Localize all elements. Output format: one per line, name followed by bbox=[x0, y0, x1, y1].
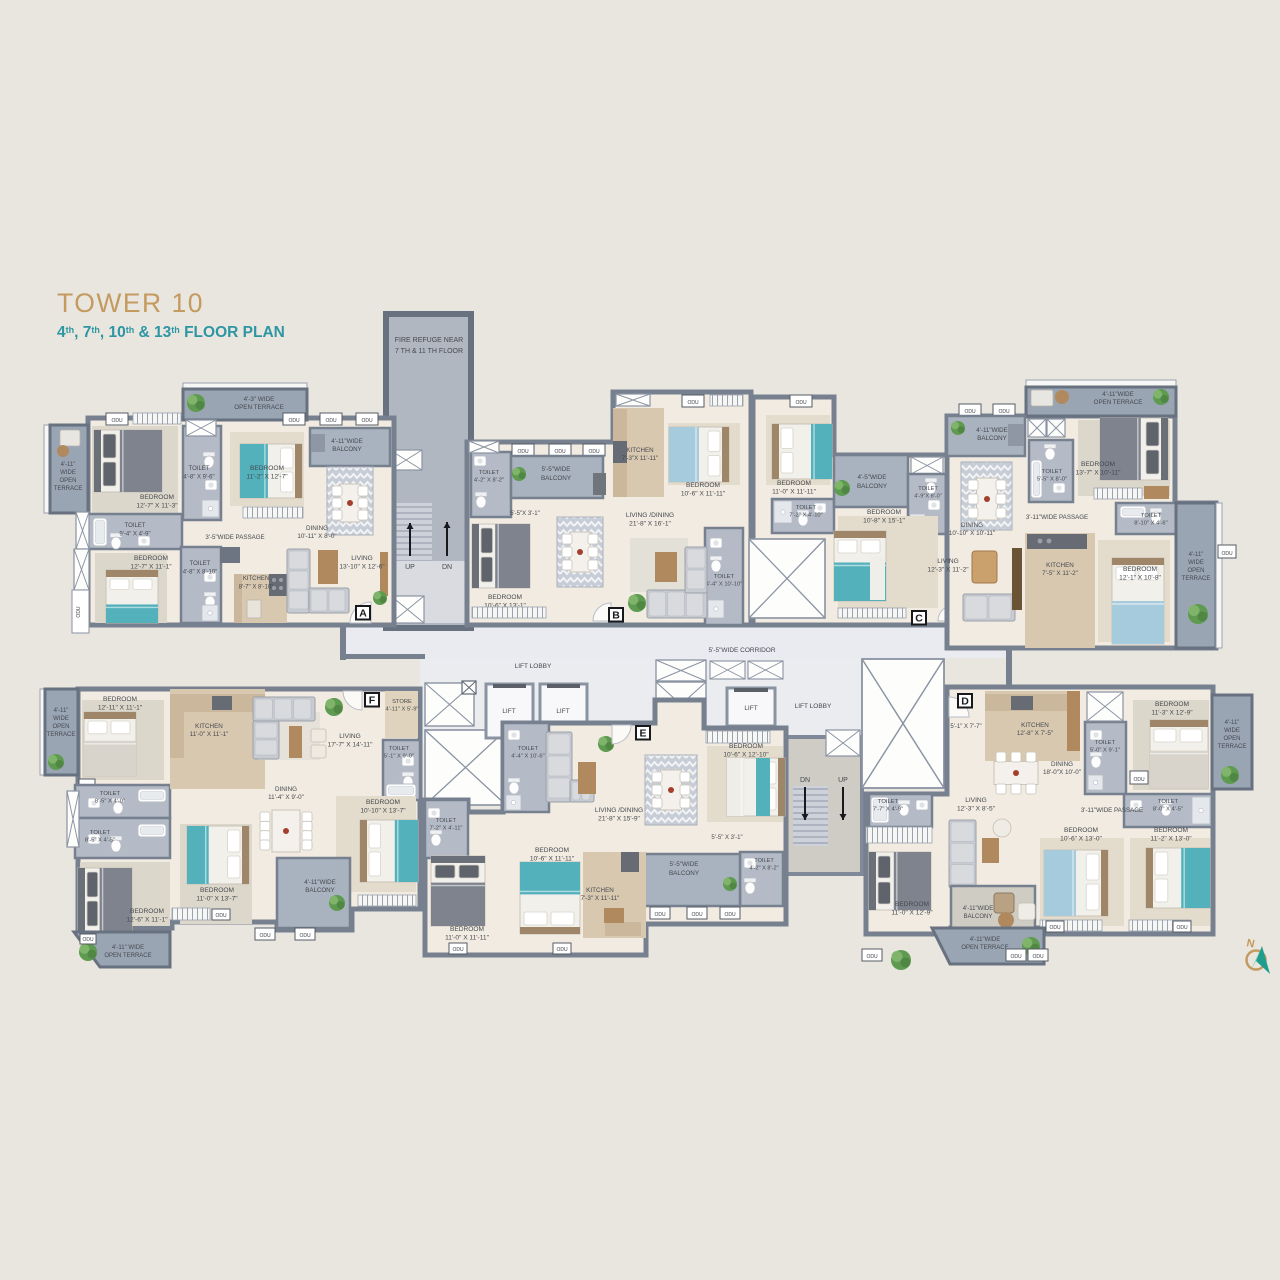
svg-text:10'-6" X 11'-11": 10'-6" X 11'-11" bbox=[530, 856, 575, 863]
svg-text:4'-11"WIDE: 4'-11"WIDE bbox=[1102, 391, 1133, 398]
svg-text:TOILET: TOILET bbox=[714, 574, 735, 580]
svg-text:ODU: ODU bbox=[866, 954, 878, 960]
svg-text:C: C bbox=[915, 613, 923, 625]
svg-text:DN: DN bbox=[442, 564, 452, 571]
svg-text:4'-11" X 5'-9": 4'-11" X 5'-9" bbox=[386, 707, 419, 713]
svg-text:7'-2" X 4'-11": 7'-2" X 4'-11" bbox=[430, 826, 463, 832]
svg-text:BEDROOM: BEDROOM bbox=[103, 696, 137, 703]
svg-text:ODU: ODU bbox=[964, 409, 976, 415]
svg-text:ODU: ODU bbox=[76, 606, 82, 618]
svg-text:ODU: ODU bbox=[654, 912, 666, 918]
svg-text:ODU: ODU bbox=[724, 912, 736, 918]
svg-text:D: D bbox=[961, 696, 969, 708]
svg-text:BEDROOM: BEDROOM bbox=[1123, 566, 1157, 573]
svg-text:ODU: ODU bbox=[299, 933, 311, 939]
svg-text:12'-3" X 8'-5": 12'-3" X 8'-5" bbox=[957, 806, 996, 813]
svg-text:KITCHEN: KITCHEN bbox=[626, 447, 653, 454]
svg-text:3'-5"WIDE PASSAGE: 3'-5"WIDE PASSAGE bbox=[205, 534, 264, 541]
svg-text:BEDROOM: BEDROOM bbox=[1154, 827, 1188, 834]
svg-text:4'-11" WIDE: 4'-11" WIDE bbox=[112, 945, 144, 951]
svg-text:11'-0" X 11'-1": 11'-0" X 11'-1" bbox=[190, 731, 229, 738]
svg-text:WIDE: WIDE bbox=[53, 716, 69, 722]
svg-text:7'-2" X 4'-10": 7'-2" X 4'-10" bbox=[789, 513, 822, 519]
svg-text:10'-10" X 10'-11": 10'-10" X 10'-11" bbox=[949, 530, 995, 537]
svg-text:TOILET: TOILET bbox=[796, 505, 817, 511]
svg-text:TERRACE: TERRACE bbox=[54, 486, 83, 492]
svg-text:4'-4" X 10'-6": 4'-4" X 10'-6" bbox=[511, 754, 544, 760]
svg-text:4'-11": 4'-11" bbox=[54, 708, 69, 714]
svg-text:4'-4" X 10'-10": 4'-4" X 10'-10" bbox=[706, 582, 743, 588]
svg-text:8'-5" X 4'-5": 8'-5" X 4'-5" bbox=[85, 838, 115, 844]
svg-text:TOILET: TOILET bbox=[479, 470, 500, 476]
svg-text:E: E bbox=[639, 728, 646, 740]
svg-text:4'-2" X 8'-2": 4'-2" X 8'-2" bbox=[749, 866, 778, 872]
svg-text:TOILET: TOILET bbox=[754, 858, 774, 864]
svg-text:BALCONY: BALCONY bbox=[541, 475, 572, 482]
svg-text:OPEN: OPEN bbox=[1187, 568, 1204, 574]
svg-text:10'-11" X 8'-0": 10'-11" X 8'-0" bbox=[297, 533, 336, 540]
svg-text:7'-7" X 4'-9": 7'-7" X 4'-9" bbox=[873, 807, 903, 813]
svg-text:ODU: ODU bbox=[1032, 954, 1044, 960]
svg-text:10'-6" X 11'-11": 10'-6" X 11'-11" bbox=[681, 491, 726, 498]
svg-text:TOILET: TOILET bbox=[100, 791, 121, 797]
svg-text:LIVING: LIVING bbox=[937, 558, 959, 565]
svg-text:OPEN: OPEN bbox=[59, 478, 76, 484]
svg-text:7'-3" X 11'-11": 7'-3" X 11'-11" bbox=[581, 895, 620, 902]
svg-text:17'-7" X 14'-11": 17'-7" X 14'-11" bbox=[328, 742, 373, 749]
svg-text:4'-3" WIDE: 4'-3" WIDE bbox=[244, 396, 275, 403]
svg-text:ODU: ODU bbox=[1133, 777, 1145, 783]
svg-text:7'-5" X 11'-2": 7'-5" X 11'-2" bbox=[1042, 570, 1078, 577]
svg-text:4th, 7th, 10th & 13th FLOOR PL: 4th, 7th, 10th & 13th FLOOR PLAN bbox=[57, 324, 285, 341]
svg-text:ODU: ODU bbox=[554, 449, 566, 455]
svg-text:7'-3"X 11'-11": 7'-3"X 11'-11" bbox=[622, 455, 658, 462]
svg-text:8'-10" X 4'-6": 8'-10" X 4'-6" bbox=[1134, 521, 1167, 527]
svg-text:BALCONY: BALCONY bbox=[332, 446, 362, 453]
svg-text:WIDE: WIDE bbox=[1188, 560, 1204, 566]
svg-text:4'-11": 4'-11" bbox=[61, 462, 76, 468]
svg-text:ODU: ODU bbox=[588, 449, 600, 455]
svg-text:4'-11"WIDE: 4'-11"WIDE bbox=[304, 879, 335, 886]
svg-text:KITCHEN: KITCHEN bbox=[1021, 722, 1049, 729]
svg-text:TERRACE: TERRACE bbox=[1182, 576, 1211, 582]
svg-text:4'-8" X 8'-10": 4'-8" X 8'-10" bbox=[183, 570, 218, 576]
svg-text:TOILET: TOILET bbox=[436, 818, 457, 824]
svg-text:4'-8" X 9'-6": 4'-8" X 9'-6" bbox=[183, 475, 214, 481]
svg-text:BEDROOM: BEDROOM bbox=[1155, 701, 1189, 708]
svg-text:FIRE REFUGE NEAR: FIRE REFUGE NEAR bbox=[395, 337, 463, 344]
svg-text:13'-7" X 10'-11": 13'-7" X 10'-11" bbox=[1076, 470, 1121, 477]
svg-text:BEDROOM: BEDROOM bbox=[200, 887, 234, 894]
svg-text:4'-9"X 8'-0": 4'-9"X 8'-0" bbox=[914, 494, 942, 500]
svg-text:4'-2" X 8'-2": 4'-2" X 8'-2" bbox=[474, 478, 504, 484]
svg-text:DINING: DINING bbox=[306, 525, 328, 532]
svg-text:OPEN TERRACE: OPEN TERRACE bbox=[234, 404, 284, 411]
svg-text:ODU: ODU bbox=[82, 937, 94, 943]
svg-text:11'-0" X 13'-7": 11'-0" X 13'-7" bbox=[196, 896, 238, 903]
svg-text:BEDROOM: BEDROOM bbox=[250, 465, 284, 472]
svg-text:11'-2" X 13'-0": 11'-2" X 13'-0" bbox=[1150, 836, 1192, 843]
svg-text:BEDROOM: BEDROOM bbox=[729, 743, 763, 750]
svg-text:BALCONY: BALCONY bbox=[669, 870, 700, 877]
svg-text:BEDROOM: BEDROOM bbox=[777, 480, 811, 487]
svg-text:KITCHEN: KITCHEN bbox=[195, 723, 223, 730]
svg-text:ODU: ODU bbox=[687, 400, 699, 406]
svg-text:BEDROOM: BEDROOM bbox=[140, 494, 174, 501]
svg-text:9'-4" X 4'-9": 9'-4" X 4'-9" bbox=[119, 532, 150, 538]
svg-text:5'-0" X 9'-1": 5'-0" X 9'-1" bbox=[1090, 748, 1120, 754]
svg-text:OPEN: OPEN bbox=[52, 724, 69, 730]
svg-text:12'-8" X 7'-5": 12'-8" X 7'-5" bbox=[1017, 730, 1053, 737]
svg-text:OPEN TERRACE: OPEN TERRACE bbox=[961, 945, 1008, 951]
svg-text:TERRACE: TERRACE bbox=[1218, 744, 1247, 750]
svg-text:ODU: ODU bbox=[215, 913, 227, 919]
svg-text:ODU: ODU bbox=[517, 449, 529, 455]
svg-text:12'-7" X 11'-3": 12'-7" X 11'-3" bbox=[136, 503, 178, 510]
svg-text:8'-0" X 4'-5": 8'-0" X 4'-5" bbox=[1153, 807, 1183, 813]
svg-text:KITCHEN: KITCHEN bbox=[243, 576, 269, 582]
svg-text:11'-0" X 11'-11": 11'-0" X 11'-11" bbox=[772, 489, 817, 496]
svg-text:LIFT LOBBY: LIFT LOBBY bbox=[515, 663, 552, 670]
svg-text:STORE: STORE bbox=[392, 699, 412, 705]
svg-text:12'-11" X 11'-1": 12'-11" X 11'-1" bbox=[98, 705, 143, 712]
svg-text:LIVING /DINING: LIVING /DINING bbox=[595, 807, 643, 814]
svg-text:OPEN TERRACE: OPEN TERRACE bbox=[1094, 399, 1143, 406]
svg-text:12'-1" X 10'-8": 12'-1" X 10'-8" bbox=[1119, 575, 1161, 582]
svg-text:B: B bbox=[612, 610, 620, 622]
svg-text:BALCONY: BALCONY bbox=[305, 887, 335, 894]
svg-text:TOILET: TOILET bbox=[1042, 469, 1063, 475]
svg-text:TOILET: TOILET bbox=[518, 746, 539, 752]
svg-text:5'-5"WIDE: 5'-5"WIDE bbox=[670, 861, 699, 868]
svg-text:BEDROOM: BEDROOM bbox=[450, 926, 484, 933]
svg-text:OPEN: OPEN bbox=[1223, 736, 1240, 742]
svg-text:11'-3" X 12'-9": 11'-3" X 12'-9" bbox=[1151, 710, 1193, 717]
svg-text:BEDROOM: BEDROOM bbox=[130, 908, 164, 915]
svg-text:ODU: ODU bbox=[1221, 551, 1233, 557]
svg-text:8'-7" X 8'-10": 8'-7" X 8'-10" bbox=[239, 585, 274, 591]
svg-text:WIDE: WIDE bbox=[1224, 728, 1240, 734]
svg-text:BEDROOM: BEDROOM bbox=[686, 482, 720, 489]
svg-text:11'-4" X 9'-0": 11'-4" X 9'-0" bbox=[268, 794, 304, 801]
svg-text:ODU: ODU bbox=[1176, 925, 1188, 931]
svg-text:10'-6" X 12'-10": 10'-6" X 12'-10" bbox=[723, 752, 769, 759]
svg-text:21'-8" X 16'-1": 21'-8" X 16'-1" bbox=[629, 521, 671, 528]
svg-text:BALCONY: BALCONY bbox=[857, 483, 888, 490]
svg-text:TOILET: TOILET bbox=[878, 799, 899, 805]
svg-text:4'-11": 4'-11" bbox=[1189, 552, 1204, 558]
svg-text:4'-11"WIDE: 4'-11"WIDE bbox=[331, 438, 362, 445]
svg-text:10'-10" X 13'-7": 10'-10" X 13'-7" bbox=[360, 808, 406, 815]
svg-text:5'-5" X 3'-1": 5'-5" X 3'-1" bbox=[711, 835, 742, 841]
svg-text:ODU: ODU bbox=[325, 418, 337, 424]
svg-text:4'-11"WIDE: 4'-11"WIDE bbox=[970, 937, 1001, 943]
svg-text:LIVING: LIVING bbox=[339, 733, 361, 740]
svg-text:ODU: ODU bbox=[452, 947, 464, 953]
svg-text:LIFT: LIFT bbox=[744, 705, 757, 712]
svg-text:TOILET: TOILET bbox=[1141, 513, 1162, 519]
svg-text:5'-5" X 8'-0": 5'-5" X 8'-0" bbox=[1037, 477, 1067, 483]
svg-text:3'-11"WIDE PASSAGE: 3'-11"WIDE PASSAGE bbox=[1026, 514, 1088, 521]
svg-text:BEDROOM: BEDROOM bbox=[535, 847, 569, 854]
svg-text:TOILET: TOILET bbox=[918, 486, 938, 492]
svg-text:18'-0"X 10'-0": 18'-0"X 10'-0" bbox=[1043, 769, 1081, 776]
svg-text:BEDROOM: BEDROOM bbox=[1081, 461, 1115, 468]
svg-text:BEDROOM: BEDROOM bbox=[134, 555, 168, 562]
svg-text:UP: UP bbox=[838, 777, 848, 784]
svg-text:11'-0" X 11'-11": 11'-0" X 11'-11" bbox=[445, 935, 490, 942]
svg-text:5'-5"WIDE: 5'-5"WIDE bbox=[542, 466, 571, 473]
svg-text:ODU: ODU bbox=[1010, 954, 1022, 960]
svg-text:BEDROOM: BEDROOM bbox=[895, 901, 929, 908]
svg-text:BEDROOM: BEDROOM bbox=[867, 509, 901, 516]
svg-text:DN: DN bbox=[800, 777, 810, 784]
svg-text:ODU: ODU bbox=[111, 418, 123, 424]
svg-text:TOILET: TOILET bbox=[125, 523, 146, 529]
svg-text:TOILET: TOILET bbox=[389, 746, 410, 752]
svg-text:ODU: ODU bbox=[998, 409, 1010, 415]
svg-text:LIFT: LIFT bbox=[502, 708, 515, 715]
svg-text:BEDROOM: BEDROOM bbox=[366, 799, 400, 806]
svg-text:DINING: DINING bbox=[1051, 761, 1073, 768]
svg-text:LIFT: LIFT bbox=[556, 708, 569, 715]
svg-text:ODU: ODU bbox=[691, 912, 703, 918]
svg-text:ODU: ODU bbox=[361, 418, 373, 424]
svg-text:LIFT LOBBY: LIFT LOBBY bbox=[795, 703, 832, 710]
svg-text:10'-6" X 13'-0": 10'-6" X 13'-0" bbox=[1060, 836, 1102, 843]
svg-text:8'-5" X 4'-0": 8'-5" X 4'-0" bbox=[95, 799, 125, 805]
svg-text:12'-3" X 11'-2": 12'-3" X 11'-2" bbox=[927, 567, 969, 574]
svg-text:LIVING: LIVING bbox=[965, 797, 987, 804]
svg-text:KITCHEN: KITCHEN bbox=[1046, 562, 1074, 569]
svg-text:21'-8" X 15'-9": 21'-8" X 15'-9" bbox=[598, 816, 640, 823]
svg-text:5'-1" X 7'-7": 5'-1" X 7'-7" bbox=[950, 724, 981, 730]
svg-text:ODU: ODU bbox=[795, 400, 807, 406]
svg-text:KITCHEN: KITCHEN bbox=[586, 887, 614, 894]
svg-text:5'-1" X 9'-0": 5'-1" X 9'-0" bbox=[384, 754, 414, 760]
svg-text:5'-5"WIDE CORRIDOR: 5'-5"WIDE CORRIDOR bbox=[708, 647, 775, 654]
svg-text:10'-8" X 15'-1": 10'-8" X 15'-1" bbox=[863, 518, 905, 525]
svg-text:TOILET: TOILET bbox=[1158, 799, 1179, 805]
svg-text:11'-2" X 12'-7": 11'-2" X 12'-7" bbox=[246, 474, 288, 481]
svg-text:12'-6" X 11'-1": 12'-6" X 11'-1" bbox=[126, 917, 168, 924]
svg-text:ODU: ODU bbox=[259, 933, 271, 939]
svg-text:BEDROOM: BEDROOM bbox=[1064, 827, 1098, 834]
svg-text:ODU: ODU bbox=[556, 947, 568, 953]
svg-text:ODU: ODU bbox=[1049, 925, 1061, 931]
svg-text:OPEN TERRACE: OPEN TERRACE bbox=[104, 953, 151, 959]
svg-text:4'-11": 4'-11" bbox=[1225, 720, 1240, 726]
svg-text:A: A bbox=[359, 608, 367, 620]
svg-text:7 TH & 11 TH FLOOR: 7 TH & 11 TH FLOOR bbox=[395, 348, 463, 355]
svg-text:DINING: DINING bbox=[961, 522, 983, 529]
svg-text:BALCONY: BALCONY bbox=[977, 435, 1007, 442]
svg-text:4'-5"WIDE: 4'-5"WIDE bbox=[858, 474, 887, 481]
svg-text:BEDROOM: BEDROOM bbox=[488, 594, 522, 601]
svg-text:ODU: ODU bbox=[288, 418, 300, 424]
svg-text:11'-0" X 12'-9": 11'-0" X 12'-9" bbox=[891, 910, 933, 917]
svg-text:BALCONY: BALCONY bbox=[964, 914, 993, 920]
svg-text:13'-10" X 12'-6": 13'-10" X 12'-6" bbox=[339, 564, 385, 571]
svg-text:TOILET: TOILET bbox=[90, 830, 111, 836]
svg-text:LIVING: LIVING bbox=[351, 555, 373, 562]
svg-text:4'-11"WIDE: 4'-11"WIDE bbox=[963, 906, 994, 912]
svg-text:F: F bbox=[369, 695, 376, 707]
svg-text:LIVING /DINING: LIVING /DINING bbox=[626, 512, 674, 519]
svg-text:UP: UP bbox=[405, 564, 415, 571]
svg-text:TOILET: TOILET bbox=[190, 561, 211, 567]
svg-text:3'-11"WIDE PASSAGE: 3'-11"WIDE PASSAGE bbox=[1081, 807, 1143, 814]
svg-text:WIDE: WIDE bbox=[60, 470, 76, 476]
svg-text:TOILET: TOILET bbox=[189, 466, 210, 472]
svg-text:5'-5"X 3'-1": 5'-5"X 3'-1" bbox=[510, 511, 540, 517]
svg-text:TERRACE: TERRACE bbox=[47, 732, 76, 738]
svg-text:TOWER 10: TOWER 10 bbox=[57, 288, 204, 318]
svg-text:12'-7" X 11'-1": 12'-7" X 11'-1" bbox=[130, 564, 172, 571]
svg-text:TOILET: TOILET bbox=[1095, 740, 1116, 746]
svg-text:DINING: DINING bbox=[275, 786, 297, 793]
svg-text:4'-11"WIDE: 4'-11"WIDE bbox=[976, 427, 1007, 434]
